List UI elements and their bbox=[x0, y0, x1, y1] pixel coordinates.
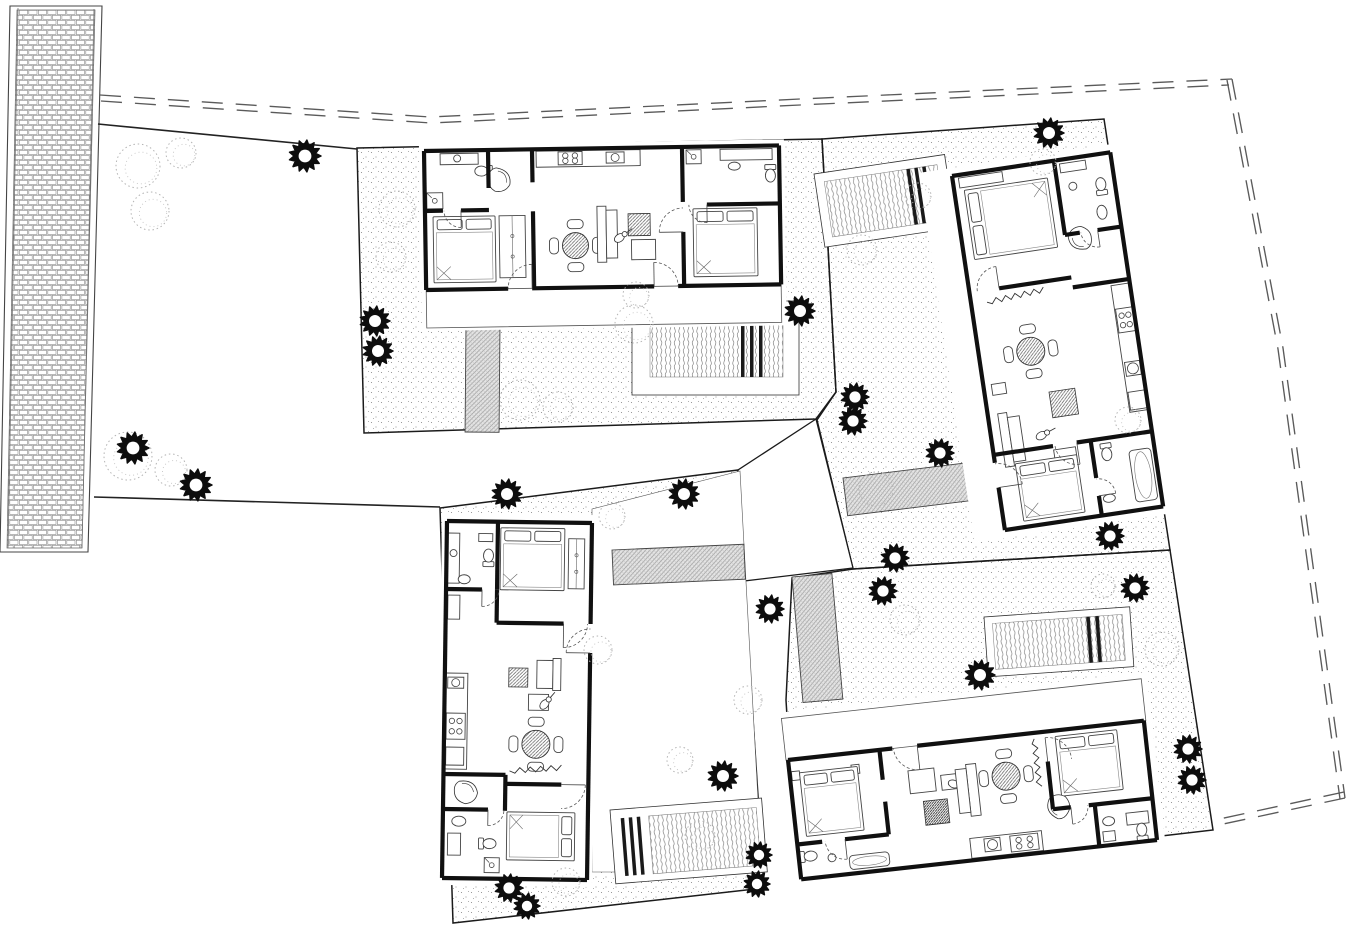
furniture-rect bbox=[1103, 831, 1116, 842]
pool-c bbox=[610, 798, 767, 884]
furniture-rect bbox=[537, 660, 553, 688]
bush bbox=[116, 144, 160, 188]
property-boundary-dashed bbox=[1214, 792, 1345, 826]
stove bbox=[558, 152, 582, 165]
house-a bbox=[419, 139, 787, 331]
sink bbox=[984, 837, 1001, 852]
shower bbox=[484, 858, 499, 873]
rug bbox=[628, 213, 650, 235]
stove bbox=[1010, 833, 1040, 852]
bed bbox=[1055, 730, 1123, 796]
sink bbox=[448, 677, 464, 688]
wardrobe bbox=[499, 215, 526, 277]
site-boundary-line bbox=[98, 124, 357, 149]
sink bbox=[1124, 360, 1141, 376]
tree bbox=[181, 469, 213, 501]
site-plan bbox=[0, 0, 1363, 948]
furniture-oval bbox=[728, 162, 740, 170]
wardrobe bbox=[568, 539, 585, 589]
tree bbox=[744, 871, 770, 897]
rug bbox=[1049, 388, 1079, 418]
furniture-rect bbox=[631, 239, 655, 259]
bed bbox=[693, 208, 758, 277]
bush bbox=[166, 138, 196, 168]
tree bbox=[746, 842, 772, 868]
furniture-circle bbox=[450, 550, 457, 557]
tree bbox=[756, 595, 784, 623]
furniture-rect bbox=[447, 533, 460, 583]
toilet bbox=[765, 164, 776, 182]
path-a bbox=[465, 324, 500, 432]
furniture-rect bbox=[606, 210, 618, 258]
bed bbox=[500, 528, 565, 591]
bed bbox=[506, 812, 575, 861]
furniture-rect bbox=[991, 382, 1006, 395]
furniture-rect bbox=[536, 150, 640, 168]
bed bbox=[433, 216, 496, 283]
furniture-rect bbox=[597, 206, 607, 262]
path-c bbox=[612, 544, 745, 585]
house-c bbox=[437, 513, 597, 887]
floor-plan-svg bbox=[0, 0, 1363, 948]
furniture-rect bbox=[479, 533, 493, 541]
furniture-rect bbox=[448, 595, 460, 619]
pool-d bbox=[984, 607, 1134, 677]
toilet bbox=[483, 549, 494, 567]
property-boundary-dashed bbox=[100, 79, 1232, 123]
sink bbox=[606, 152, 624, 163]
furniture-rect bbox=[908, 768, 936, 794]
toilet bbox=[478, 838, 496, 849]
furniture-rect bbox=[791, 771, 800, 781]
furniture-rect bbox=[446, 747, 464, 765]
shower bbox=[427, 193, 443, 209]
tree bbox=[118, 432, 150, 464]
furniture-rect bbox=[720, 149, 772, 161]
furniture-oval bbox=[458, 575, 470, 584]
property-boundary-dashed bbox=[1227, 79, 1345, 799]
bed bbox=[964, 178, 1057, 260]
bed bbox=[799, 766, 864, 836]
shower bbox=[686, 150, 701, 164]
furniture-oval bbox=[452, 816, 466, 826]
road-cobblestone bbox=[0, 6, 102, 552]
rug bbox=[509, 668, 528, 687]
furniture-rect bbox=[447, 833, 460, 855]
rug bbox=[923, 799, 949, 825]
bush bbox=[131, 192, 169, 230]
furniture-rect bbox=[553, 658, 561, 690]
site-boundary-line bbox=[94, 497, 440, 507]
furniture-circle bbox=[454, 155, 461, 162]
stove bbox=[446, 713, 465, 739]
furniture-rect bbox=[1126, 811, 1149, 825]
